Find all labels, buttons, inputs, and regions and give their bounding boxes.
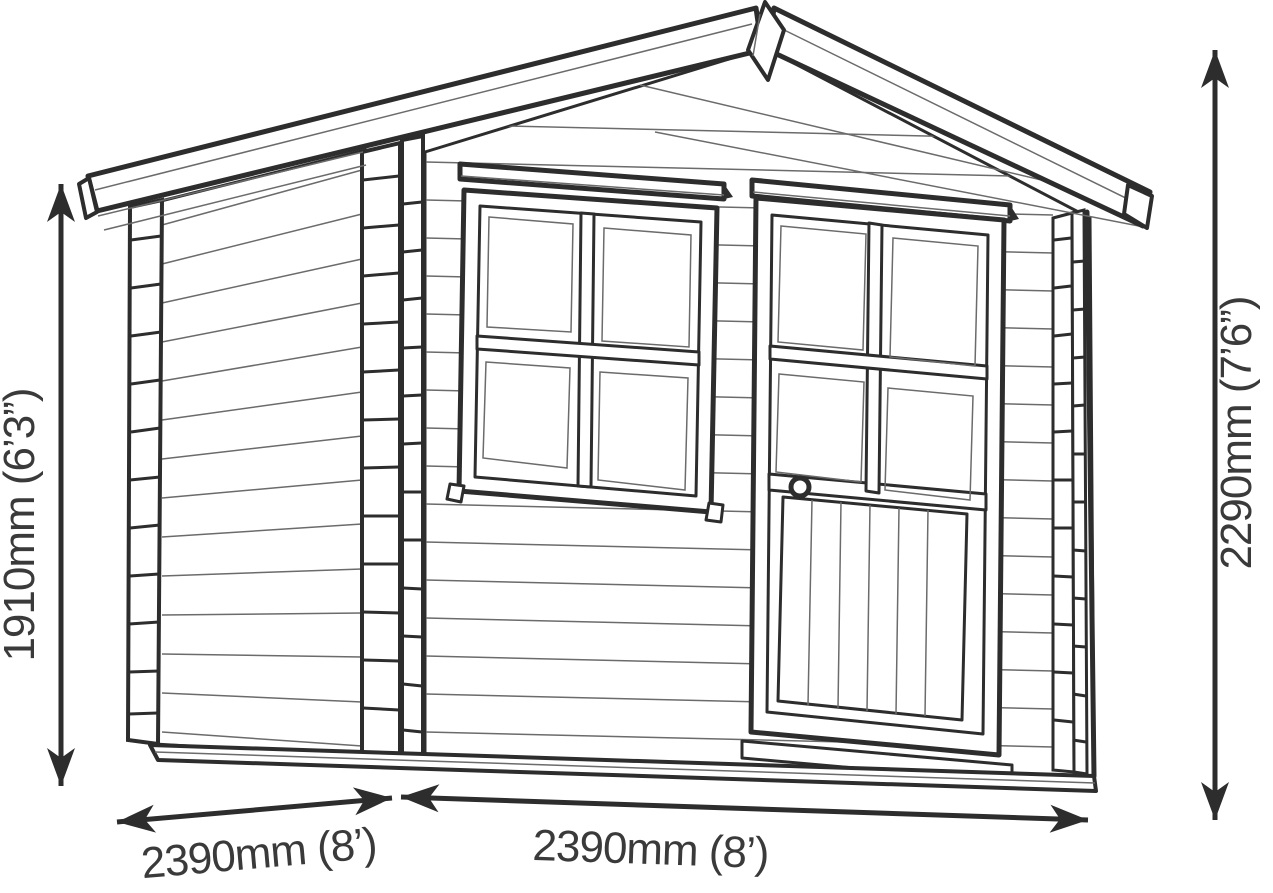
door-knob xyxy=(791,478,809,496)
window-sill-left xyxy=(447,484,464,502)
dimension-label-ridge-height: 2290mm (7’6”) xyxy=(1212,296,1261,569)
dimension-label-side-height: 1910mm (6’3”) xyxy=(0,388,44,661)
dimension-label-front-width: 2390mm (8’) xyxy=(532,821,770,878)
dimension-arrow-bottom-left-width xyxy=(117,798,392,822)
dimension-arrow-bottom-right-width xyxy=(401,797,1088,820)
window-sill-right xyxy=(706,503,723,522)
dimension-label-side-width: 2390mm (8’) xyxy=(139,819,378,888)
side-wall-left-corner-logs xyxy=(128,200,162,744)
side-wall xyxy=(128,150,368,757)
door-plank-panel xyxy=(778,497,967,720)
door xyxy=(742,180,1019,782)
shed-drawing-svg: 1910mm (6’3”) 2290mm (7’6”) 2390mm (8’) … xyxy=(0,0,1273,893)
shed-dimension-diagram: 1910mm (6’3”) 2290mm (7’6”) 2390mm (8’) … xyxy=(0,0,1273,893)
window xyxy=(447,164,733,522)
corner-logs-center xyxy=(362,136,423,761)
